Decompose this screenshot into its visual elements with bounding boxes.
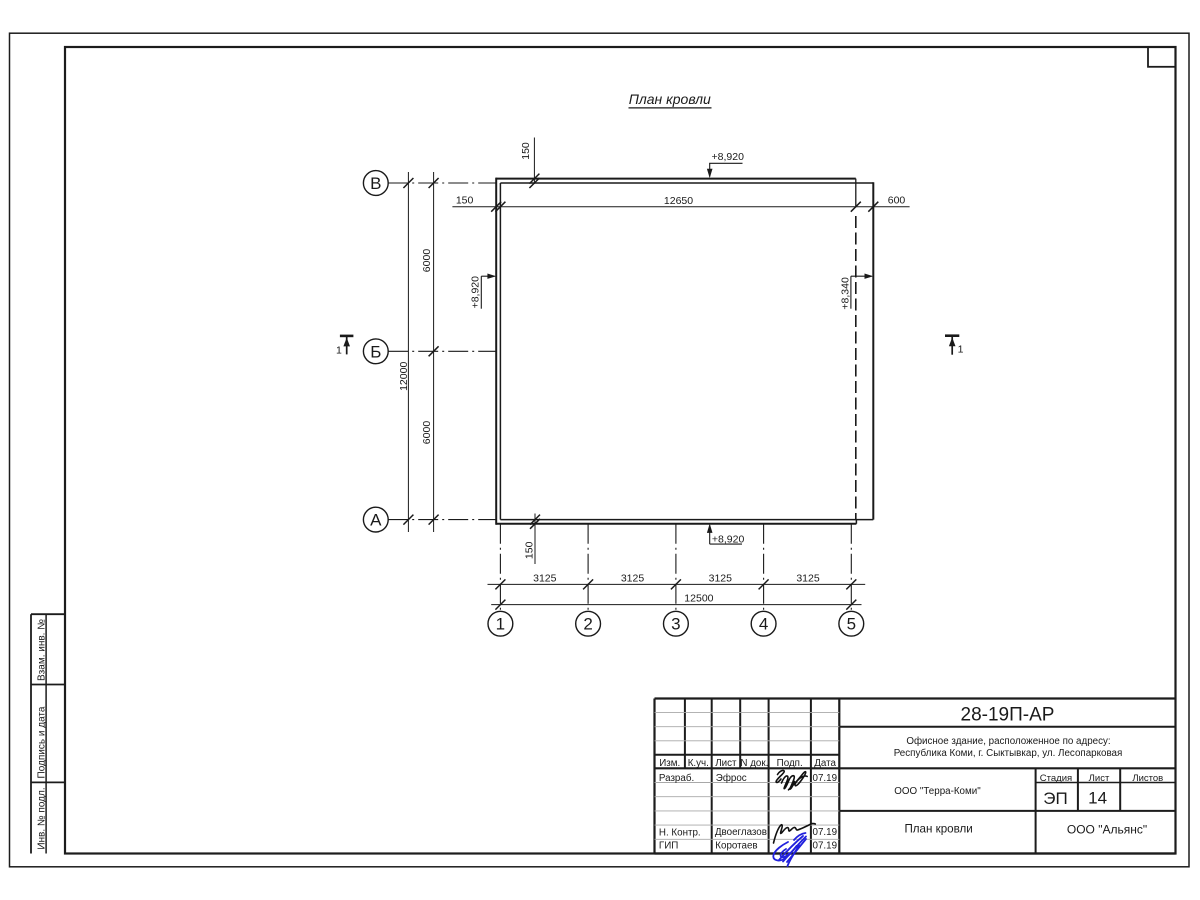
svg-text:Республика Коми, г. Сыктывкар,: Республика Коми, г. Сыктывкар, ул. Лесоп… [894, 748, 1123, 759]
svg-text:Двоеглазов: Двоеглазов [715, 827, 767, 838]
svg-text:1: 1 [496, 615, 505, 634]
svg-text:Н. Контр.: Н. Контр. [659, 827, 701, 838]
svg-text:План кровли: План кровли [629, 91, 711, 107]
svg-text:3125: 3125 [533, 573, 557, 585]
svg-text:1: 1 [336, 344, 342, 356]
svg-text:Подпись и дата: Подпись и дата [36, 706, 47, 778]
svg-text:3125: 3125 [796, 573, 820, 585]
svg-text:6000: 6000 [421, 421, 433, 445]
svg-text:ООО "Терра-Коми": ООО "Терра-Коми" [894, 786, 981, 797]
svg-text:28-19П-АР: 28-19П-АР [961, 705, 1055, 726]
svg-text:N док.: N док. [740, 758, 768, 769]
svg-text:Взам. инв. №: Взам. инв. № [36, 619, 47, 681]
svg-text:Стадия: Стадия [1040, 773, 1072, 784]
svg-text:План кровли: План кровли [904, 823, 972, 836]
svg-text:12500: 12500 [684, 593, 713, 605]
svg-text:К.уч.: К.уч. [688, 758, 709, 769]
svg-text:3: 3 [671, 615, 680, 634]
svg-text:Подп.: Подп. [777, 758, 803, 769]
svg-text:150: 150 [456, 195, 474, 207]
svg-text:150: 150 [520, 142, 532, 160]
svg-text:07.19: 07.19 [813, 827, 838, 838]
svg-text:Лист: Лист [715, 758, 737, 769]
svg-text:+8,920: +8,920 [470, 276, 482, 309]
svg-text:ЭП: ЭП [1043, 789, 1067, 808]
svg-text:ГИП: ГИП [659, 841, 678, 852]
svg-text:3125: 3125 [709, 573, 733, 585]
svg-text:Листов: Листов [1132, 773, 1163, 784]
svg-text:14: 14 [1088, 789, 1107, 808]
svg-text:+8,920: +8,920 [712, 534, 745, 546]
svg-text:Б: Б [370, 342, 381, 361]
svg-text:ООО "Альянс": ООО "Альянс" [1067, 822, 1147, 836]
svg-text:1: 1 [958, 344, 964, 356]
svg-text:12650: 12650 [664, 195, 693, 207]
svg-text:Инв. № подл.: Инв. № подл. [36, 787, 47, 849]
svg-text:В: В [370, 174, 381, 193]
svg-text:+8,340: +8,340 [839, 277, 851, 310]
svg-text:600: 600 [888, 195, 906, 207]
svg-text:07.19: 07.19 [813, 841, 838, 852]
svg-text:07.19: 07.19 [813, 773, 838, 784]
svg-text:150: 150 [524, 541, 536, 559]
svg-text:Коротаев: Коротаев [715, 841, 757, 852]
svg-text:А: А [370, 511, 382, 530]
svg-text:4: 4 [759, 615, 768, 634]
svg-text:5: 5 [847, 615, 856, 634]
svg-text:12000: 12000 [398, 362, 410, 391]
svg-text:Эфрос: Эфрос [716, 773, 747, 784]
svg-text:3125: 3125 [621, 573, 645, 585]
svg-text:Разраб.: Разраб. [659, 773, 694, 784]
svg-text:Офисное здание, расположенное: Офисное здание, расположенное по адресу: [906, 736, 1110, 747]
svg-text:+8,920: +8,920 [712, 151, 745, 163]
svg-text:Лист: Лист [1089, 773, 1110, 784]
svg-text:2: 2 [583, 615, 592, 634]
svg-text:6000: 6000 [421, 249, 433, 273]
svg-text:Дата: Дата [814, 758, 836, 769]
svg-text:Изм.: Изм. [659, 758, 680, 769]
